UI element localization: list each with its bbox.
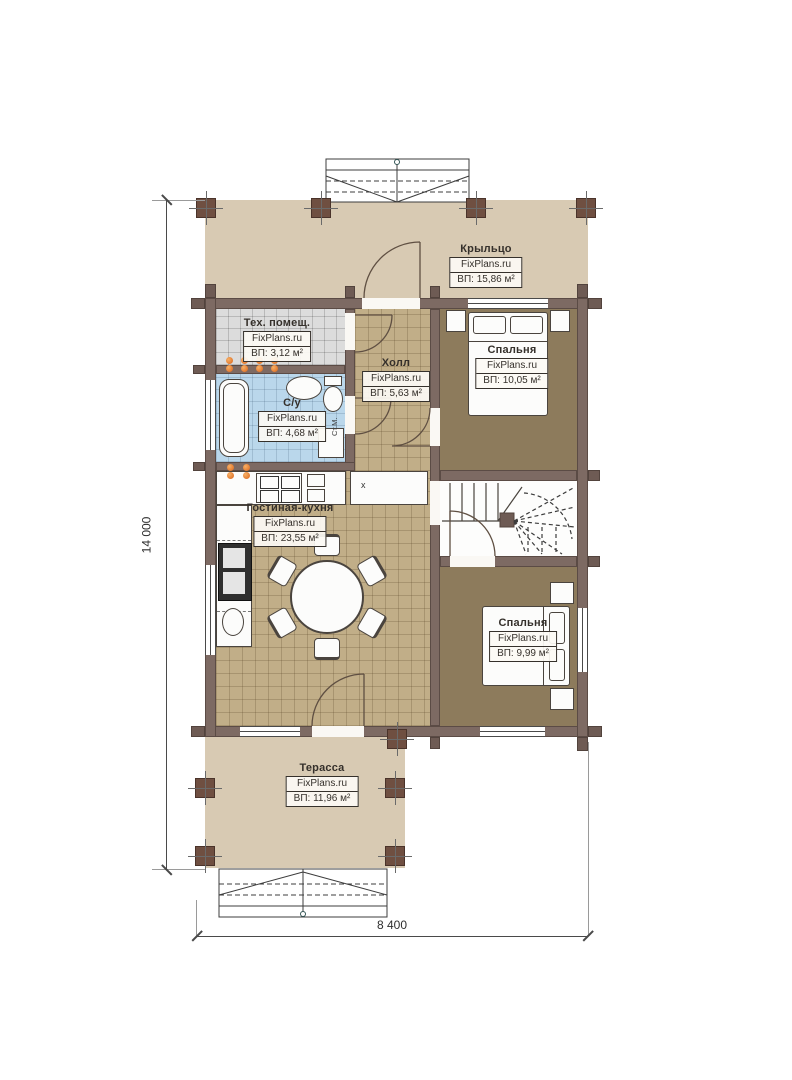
room-label-tech: Тех. помещ. FixPlans.ru ВП: 3,12 м² xyxy=(243,317,311,362)
brand-watermark: FixPlans.ru xyxy=(363,372,429,387)
dimension-extension xyxy=(152,200,205,201)
room-area: ВП: 3,12 м² xyxy=(244,347,310,361)
brand-watermark: FixPlans.ru xyxy=(287,777,358,792)
brand-watermark: FixPlans.ru xyxy=(490,632,556,647)
room-name: Холл xyxy=(362,357,430,369)
dimension-line-width xyxy=(196,936,588,937)
room-label-terrace: Терасса FixPlans.ru ВП: 11,96 м² xyxy=(286,762,359,807)
room-label-bedroom1: Спальня FixPlans.ru ВП: 10,05 м² xyxy=(475,344,548,389)
room-area: ВП: 15,86 м² xyxy=(450,273,521,287)
room-name: Крыльцо xyxy=(449,243,522,255)
dimension-width-label: 8 400 xyxy=(352,918,432,932)
room-label-hall: Холл FixPlans.ru ВП: 5,63 м² xyxy=(362,357,430,402)
room-area: ВП: 9,99 м² xyxy=(490,647,556,661)
room-name: Спальня xyxy=(489,617,557,629)
brand-watermark: FixPlans.ru xyxy=(254,517,325,532)
room-name: Терасса xyxy=(286,762,359,774)
room-name: Спальня xyxy=(475,344,548,356)
room-area: ВП: 4,68 м² xyxy=(259,427,325,441)
room-label-bedroom2: Спальня FixPlans.ru ВП: 9,99 м² xyxy=(489,617,557,662)
room-label-porch: Крыльцо FixPlans.ru ВП: 15,86 м² xyxy=(449,243,522,288)
room-area: ВП: 10,05 м² xyxy=(476,374,547,388)
dimension-extension xyxy=(196,900,197,936)
room-area: ВП: 5,63 м² xyxy=(363,387,429,401)
room-label-bathroom: С/у FixPlans.ru ВП: 4,68 м² xyxy=(258,397,326,442)
brand-watermark: FixPlans.ru xyxy=(450,258,521,273)
room-area: ВП: 11,96 м² xyxy=(287,792,358,806)
room-name: С/у xyxy=(258,397,326,409)
dimension-line-height xyxy=(166,200,167,870)
room-label-living-kitchen: Гостиная-кухня FixPlans.ru ВП: 23,55 м² xyxy=(246,502,333,547)
dimension-extension xyxy=(588,742,589,936)
brand-watermark: FixPlans.ru xyxy=(244,332,310,347)
floor-plan: Ст.М. x xyxy=(0,0,792,1080)
brand-watermark: FixPlans.ru xyxy=(476,359,547,374)
room-name: Гостиная-кухня xyxy=(246,502,333,514)
room-name: Тех. помещ. xyxy=(243,317,311,329)
brand-watermark: FixPlans.ru xyxy=(259,412,325,427)
dimension-height-label: 14 000 xyxy=(139,517,153,554)
dimension-extension xyxy=(152,869,205,870)
room-area: ВП: 23,55 м² xyxy=(254,532,325,546)
